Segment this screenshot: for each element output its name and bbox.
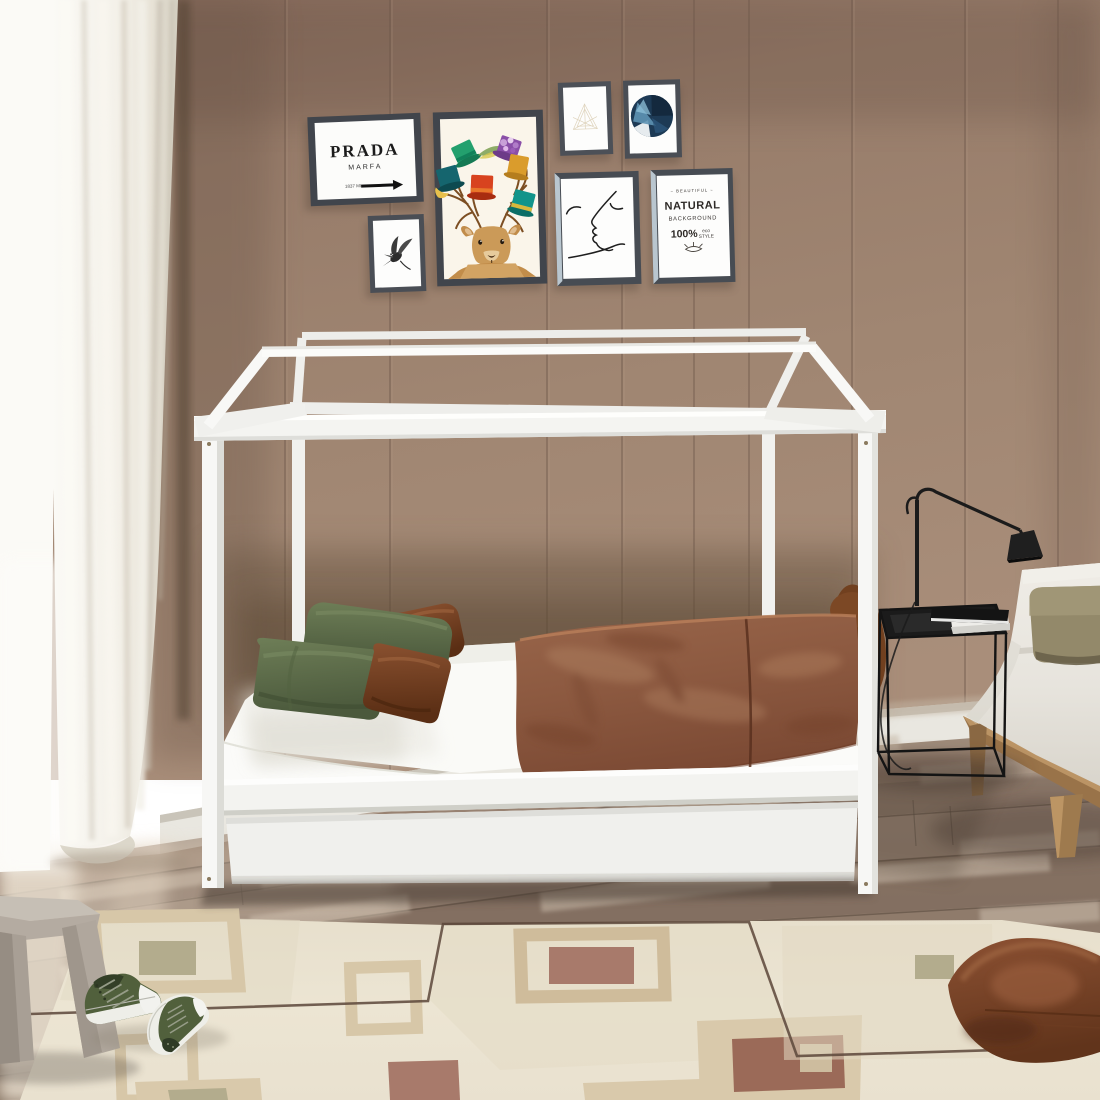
svg-text:MARFA: MARFA	[348, 163, 382, 171]
svg-text:100%: 100%	[671, 228, 699, 241]
svg-text:BACKGROUND: BACKGROUND	[668, 215, 717, 222]
svg-text:STYLE: STYLE	[699, 233, 714, 239]
svg-text:1837 MI: 1837 MI	[345, 183, 361, 189]
svg-text:NATURAL: NATURAL	[664, 199, 720, 212]
svg-text:eco: eco	[702, 229, 710, 234]
svg-text:PRADA: PRADA	[330, 140, 400, 162]
